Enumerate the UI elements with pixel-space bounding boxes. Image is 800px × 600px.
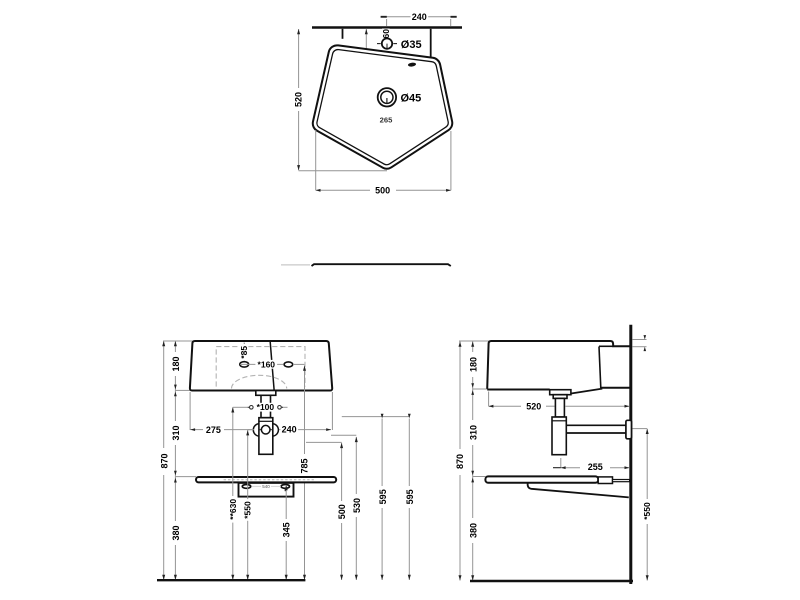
svg-text:60: 60 — [381, 29, 391, 39]
svg-text:380: 380 — [171, 525, 181, 540]
svg-text:310: 310 — [171, 425, 181, 440]
svg-text:530: 530 — [352, 498, 362, 513]
svg-text:595: 595 — [378, 489, 388, 504]
svg-text:240: 240 — [282, 424, 297, 434]
svg-text:265: 265 — [380, 116, 393, 125]
svg-text:*550: *550 — [242, 501, 252, 519]
svg-text:595: 595 — [405, 489, 415, 504]
svg-text:520: 520 — [526, 401, 541, 411]
svg-text:275: 275 — [206, 425, 221, 435]
svg-text:240: 240 — [412, 12, 427, 22]
svg-text:785: 785 — [299, 458, 309, 473]
svg-text:*85: *85 — [239, 346, 249, 359]
svg-text:255: 255 — [588, 462, 603, 472]
svg-text:*160: *160 — [258, 359, 276, 369]
svg-text:*100: *100 — [257, 402, 275, 412]
svg-text:310: 310 — [468, 425, 478, 440]
svg-text:345: 345 — [281, 522, 291, 537]
svg-text:Ø45: Ø45 — [401, 92, 422, 104]
svg-text:500: 500 — [337, 504, 347, 519]
svg-text:*550: *550 — [642, 502, 652, 520]
svg-text:540: 540 — [262, 484, 270, 489]
svg-text:520: 520 — [294, 92, 304, 107]
svg-text:**630: **630 — [228, 499, 238, 520]
svg-text:Ø35: Ø35 — [401, 39, 422, 51]
svg-text:180: 180 — [468, 357, 478, 372]
svg-text:500: 500 — [375, 185, 390, 195]
svg-text:380: 380 — [468, 523, 478, 538]
svg-text:180: 180 — [171, 356, 181, 371]
svg-text:870: 870 — [160, 453, 170, 468]
svg-text:870: 870 — [455, 454, 465, 469]
